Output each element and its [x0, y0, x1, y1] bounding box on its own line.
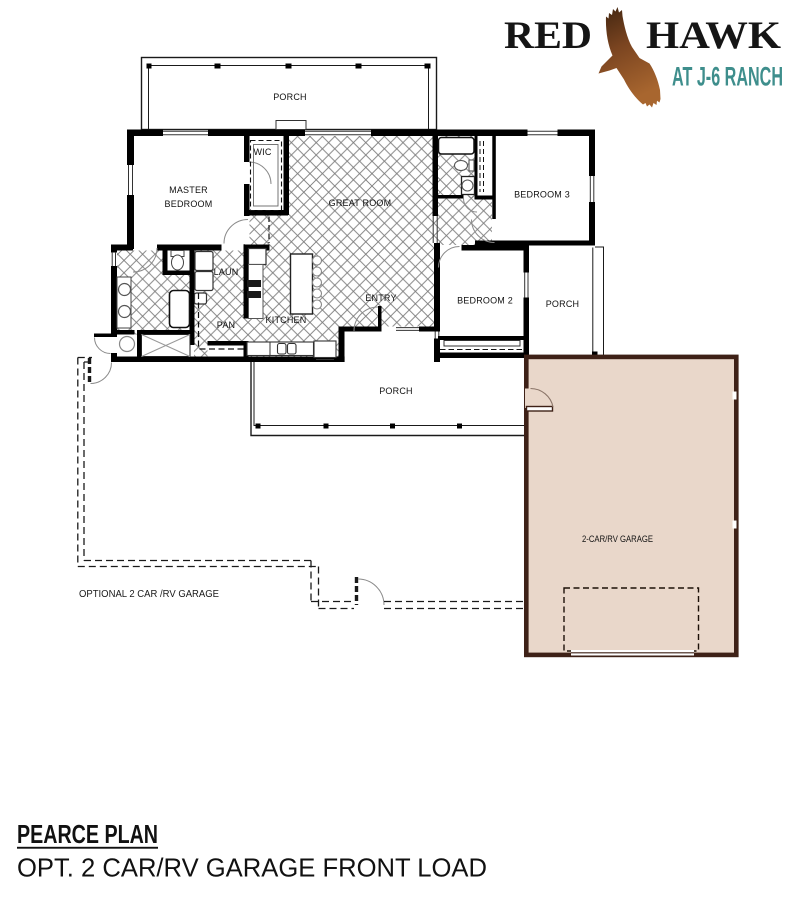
svg-text:GREAT ROOM: GREAT ROOM	[329, 198, 392, 208]
svg-text:LAUN: LAUN	[214, 267, 239, 277]
svg-text:BEDROOM 2: BEDROOM 2	[457, 296, 513, 306]
svg-text:AT J-6 RANCH: AT J-6 RANCH	[672, 62, 783, 92]
svg-text:PORCH: PORCH	[546, 299, 580, 309]
svg-text:OPTIONAL 2 CAR /RV GARAGE: OPTIONAL 2 CAR /RV GARAGE	[79, 588, 219, 600]
svg-text:MASTER: MASTER	[169, 185, 208, 195]
svg-text:PEARCE PLAN: PEARCE PLAN	[17, 819, 158, 849]
svg-text:PORCH: PORCH	[379, 386, 413, 396]
svg-text:2-CAR/RV GARAGE: 2-CAR/RV GARAGE	[582, 534, 653, 544]
svg-text:PORCH: PORCH	[273, 92, 307, 102]
svg-text:OPT. 2 CAR/RV GARAGE FRONT LOA: OPT. 2 CAR/RV GARAGE FRONT LOAD	[17, 853, 487, 883]
svg-text:HAWK: HAWK	[646, 14, 782, 57]
svg-text:WIC: WIC	[253, 147, 271, 157]
svg-text:BEDROOM 3: BEDROOM 3	[514, 190, 570, 200]
svg-text:ENTRY: ENTRY	[365, 293, 396, 303]
svg-text:KITCHEN: KITCHEN	[266, 315, 307, 325]
svg-text:BEDROOM: BEDROOM	[165, 199, 213, 209]
svg-text:RED: RED	[504, 14, 592, 57]
svg-text:PAN: PAN	[217, 320, 235, 330]
